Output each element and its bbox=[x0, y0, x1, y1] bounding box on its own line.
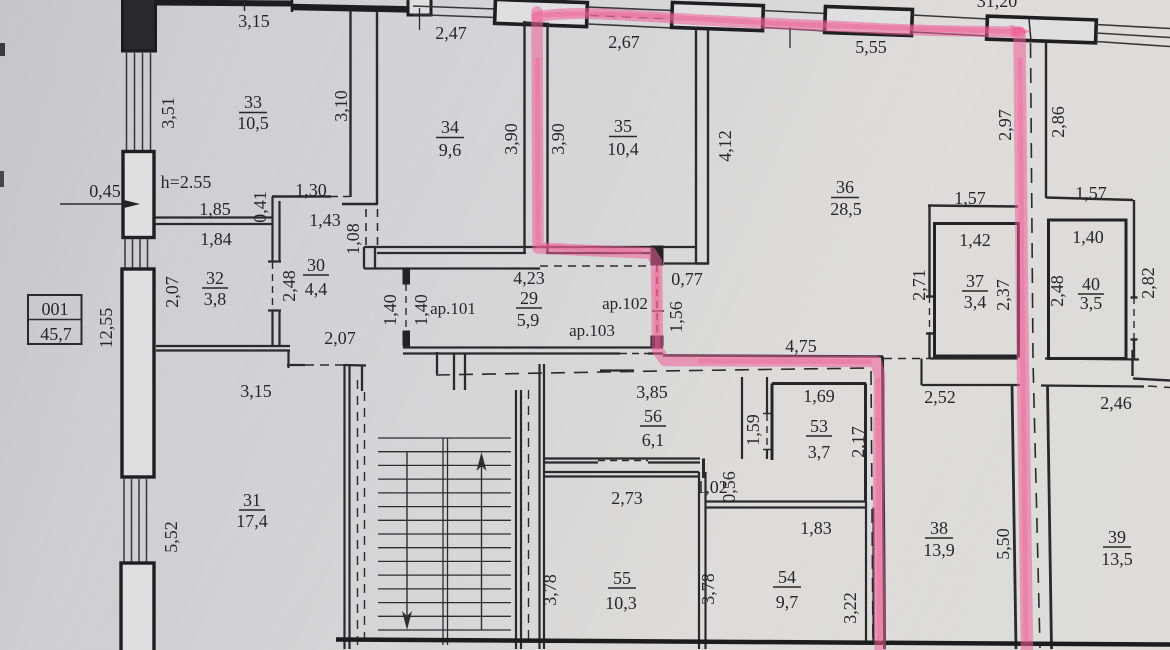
svg-text:3,90: 3,90 bbox=[548, 123, 568, 155]
svg-text:32: 32 bbox=[206, 268, 224, 288]
svg-text:6,1: 6,1 bbox=[642, 430, 665, 450]
svg-text:ар.103: ар.103 bbox=[569, 321, 615, 340]
svg-text:3,15: 3,15 bbox=[238, 11, 270, 31]
svg-text:1,40: 1,40 bbox=[411, 294, 431, 326]
svg-text:31,20: 31,20 bbox=[977, 0, 1018, 11]
svg-text:30: 30 bbox=[307, 255, 325, 275]
svg-text:ар.101: ар.101 bbox=[430, 299, 476, 318]
svg-text:2,48: 2,48 bbox=[1047, 275, 1067, 307]
svg-text:3,7: 3,7 bbox=[808, 442, 831, 462]
svg-text:1,57: 1,57 bbox=[1075, 183, 1107, 203]
svg-text:0,41: 0,41 bbox=[250, 191, 270, 223]
svg-text:2,71: 2,71 bbox=[909, 269, 929, 301]
svg-text:2,37: 2,37 bbox=[993, 279, 1013, 311]
svg-text:4,4: 4,4 bbox=[305, 279, 328, 299]
svg-text:29: 29 bbox=[520, 288, 538, 308]
svg-text:53: 53 bbox=[810, 416, 828, 436]
svg-text:1,56: 1,56 bbox=[666, 301, 686, 333]
svg-text:2,48: 2,48 bbox=[279, 270, 299, 302]
svg-text:3,15: 3,15 bbox=[240, 381, 272, 401]
svg-text:ар.102: ар.102 bbox=[602, 294, 648, 313]
svg-text:3,85: 3,85 bbox=[636, 382, 668, 402]
svg-text:2,73: 2,73 bbox=[611, 488, 643, 508]
svg-text:0,56: 0,56 bbox=[719, 471, 739, 503]
svg-text:10,4: 10,4 bbox=[607, 139, 639, 159]
svg-text:4,75: 4,75 bbox=[785, 336, 817, 356]
svg-text:3,90: 3,90 bbox=[501, 123, 521, 155]
svg-text:2,52: 2,52 bbox=[924, 387, 956, 407]
svg-text:1,85: 1,85 bbox=[199, 199, 231, 219]
svg-text:3,8: 3,8 bbox=[204, 289, 227, 309]
svg-text:2,17: 2,17 bbox=[848, 426, 868, 458]
svg-text:3,10: 3,10 bbox=[331, 90, 351, 122]
svg-text:4,12: 4,12 bbox=[715, 130, 735, 162]
svg-text:h=2.55: h=2.55 bbox=[161, 172, 212, 192]
svg-text:2,67: 2,67 bbox=[608, 32, 640, 52]
svg-text:1,42: 1,42 bbox=[959, 230, 991, 250]
svg-text:54: 54 bbox=[778, 567, 796, 587]
svg-text:5,9: 5,9 bbox=[517, 310, 540, 330]
svg-text:3,78: 3,78 bbox=[540, 574, 560, 606]
svg-text:17,4: 17,4 bbox=[236, 511, 268, 531]
svg-text:28,5: 28,5 bbox=[830, 199, 862, 219]
svg-text:1,84: 1,84 bbox=[200, 229, 232, 249]
svg-text:3,78: 3,78 bbox=[698, 573, 718, 605]
svg-text:56: 56 bbox=[644, 406, 662, 426]
svg-text:9,7: 9,7 bbox=[776, 592, 799, 612]
svg-text:40: 40 bbox=[1082, 274, 1100, 294]
svg-text:37: 37 bbox=[966, 271, 984, 291]
svg-text:5,52: 5,52 bbox=[161, 521, 181, 553]
svg-text:3,51: 3,51 bbox=[158, 97, 178, 129]
svg-text:13,9: 13,9 bbox=[923, 540, 955, 560]
svg-text:2,46: 2,46 bbox=[1100, 393, 1132, 413]
svg-text:1,08: 1,08 bbox=[343, 223, 363, 255]
svg-text:39: 39 bbox=[1108, 527, 1126, 547]
svg-text:1,83: 1,83 bbox=[800, 518, 832, 538]
svg-text:34: 34 bbox=[441, 117, 459, 137]
svg-text:1,40: 1,40 bbox=[380, 294, 400, 326]
svg-text:45,7: 45,7 bbox=[40, 324, 72, 344]
svg-text:1,69: 1,69 bbox=[803, 386, 835, 406]
svg-text:2,86: 2,86 bbox=[1048, 106, 1068, 138]
svg-text:10,5: 10,5 bbox=[237, 113, 269, 133]
svg-text:2,97: 2,97 bbox=[995, 109, 1015, 141]
svg-text:1,40: 1,40 bbox=[1072, 227, 1104, 247]
svg-text:0,45: 0,45 bbox=[89, 181, 121, 201]
svg-text:1,43: 1,43 bbox=[309, 210, 341, 230]
svg-text:12,55: 12,55 bbox=[96, 308, 116, 349]
svg-text:0,77: 0,77 bbox=[671, 269, 703, 289]
svg-text:1,59: 1,59 bbox=[743, 414, 763, 446]
svg-text:10,3: 10,3 bbox=[605, 593, 637, 613]
svg-text:5,50: 5,50 bbox=[993, 528, 1013, 560]
svg-text:2,07: 2,07 bbox=[324, 328, 356, 348]
svg-text:36: 36 bbox=[836, 177, 854, 197]
svg-text:1,30: 1,30 bbox=[295, 180, 327, 200]
svg-text:001: 001 bbox=[42, 299, 69, 319]
svg-text:1,57: 1,57 bbox=[954, 188, 986, 208]
svg-text:2,82: 2,82 bbox=[1138, 267, 1158, 299]
svg-text:13,5: 13,5 bbox=[1101, 549, 1133, 569]
svg-text:3,22: 3,22 bbox=[840, 592, 860, 624]
svg-text:9,6: 9,6 bbox=[439, 140, 462, 160]
svg-text:2,47: 2,47 bbox=[435, 23, 467, 43]
svg-text:38: 38 bbox=[930, 518, 948, 538]
svg-text:3,5: 3,5 bbox=[1080, 293, 1103, 313]
svg-text:4,23: 4,23 bbox=[513, 268, 545, 288]
svg-text:3,4: 3,4 bbox=[964, 292, 987, 312]
svg-text:55: 55 bbox=[613, 568, 631, 588]
svg-text:35: 35 bbox=[614, 116, 632, 136]
svg-text:33: 33 bbox=[244, 92, 262, 112]
svg-text:31: 31 bbox=[243, 490, 261, 510]
svg-text:2,07: 2,07 bbox=[162, 276, 182, 308]
svg-text:5,55: 5,55 bbox=[855, 37, 887, 57]
